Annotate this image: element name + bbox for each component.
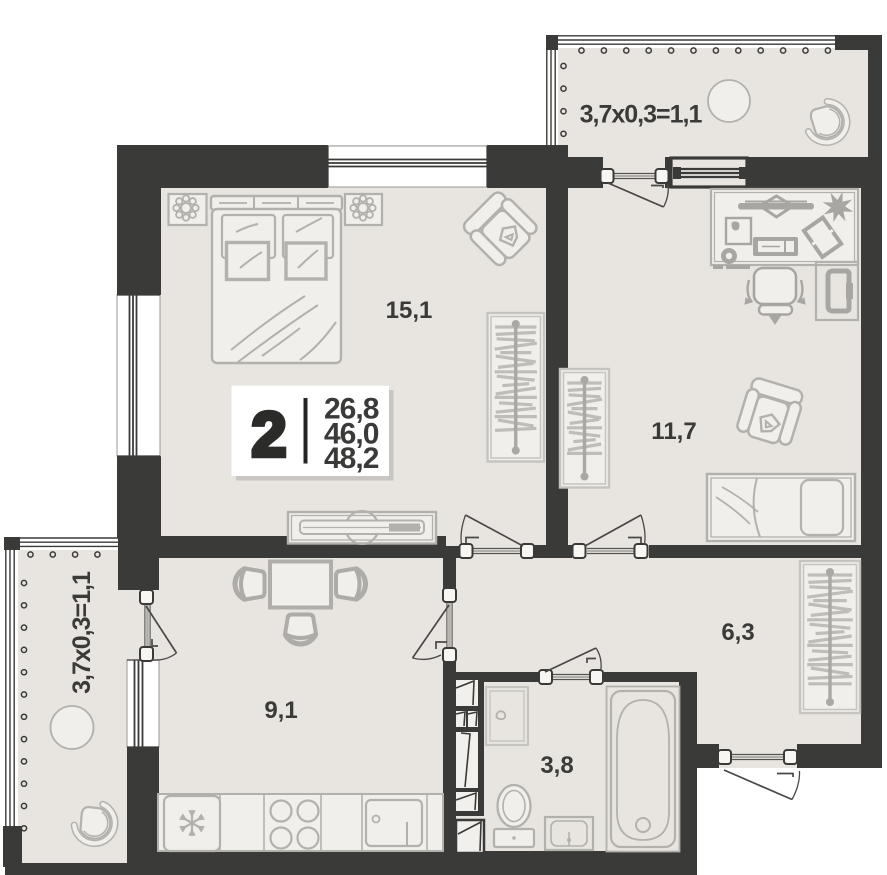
svg-text:6,3: 6,3	[721, 619, 754, 646]
svg-text:2: 2	[251, 400, 286, 470]
svg-text:9,1: 9,1	[264, 697, 297, 724]
svg-text:15,1: 15,1	[386, 297, 433, 324]
svg-text:48,2: 48,2	[324, 442, 379, 475]
svg-text:11,7: 11,7	[651, 418, 696, 445]
svg-text:3,7x0,3=1,1: 3,7x0,3=1,1	[580, 101, 703, 129]
svg-text:3,7x0,3=1,1: 3,7x0,3=1,1	[68, 571, 96, 694]
svg-text:3,8: 3,8	[540, 752, 573, 779]
